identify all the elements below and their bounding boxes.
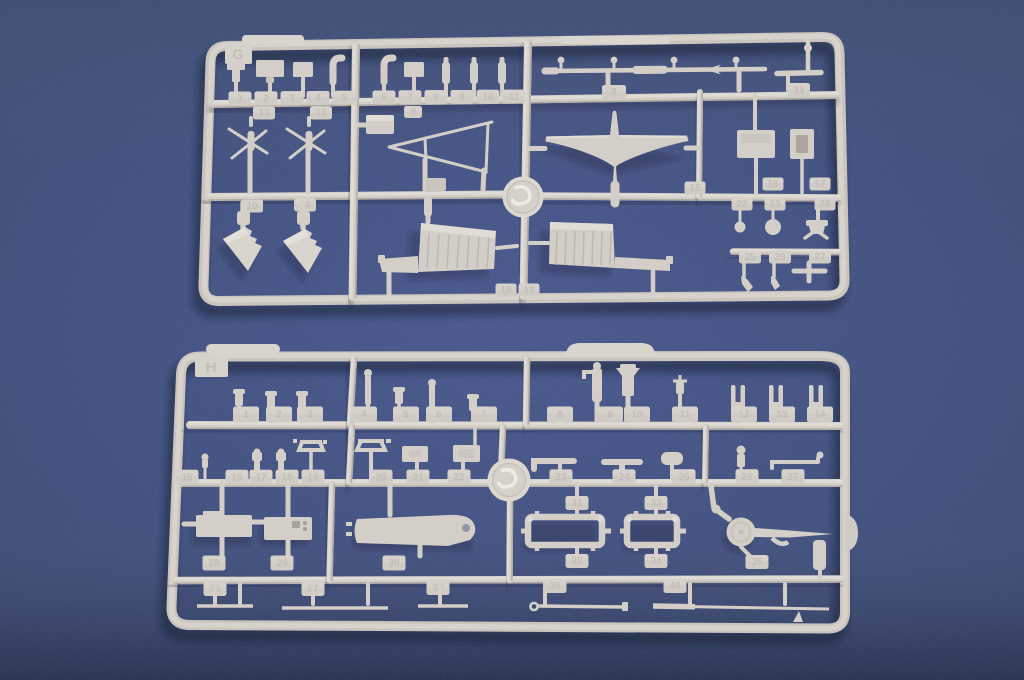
svg-text:32: 32 xyxy=(571,556,583,567)
svg-text:35: 35 xyxy=(751,557,763,568)
svg-text:15: 15 xyxy=(689,183,701,194)
svg-text:11: 11 xyxy=(680,410,691,421)
svg-text:10: 10 xyxy=(631,410,643,421)
svg-text:11: 11 xyxy=(794,85,805,96)
svg-text:4: 4 xyxy=(361,410,367,421)
svg-text:3: 3 xyxy=(307,410,313,421)
svg-text:26: 26 xyxy=(774,252,786,263)
svg-text:10: 10 xyxy=(482,92,494,103)
svg-text:17: 17 xyxy=(814,179,826,190)
svg-text:H: H xyxy=(206,359,217,376)
svg-text:34: 34 xyxy=(650,556,662,567)
svg-text:28: 28 xyxy=(208,558,220,569)
svg-text:40: 40 xyxy=(669,581,681,592)
svg-text:27: 27 xyxy=(787,472,799,483)
svg-text:26: 26 xyxy=(741,472,753,483)
svg-text:25: 25 xyxy=(678,472,690,483)
svg-text:7: 7 xyxy=(481,410,487,421)
svg-text:6: 6 xyxy=(436,410,442,421)
svg-text:16: 16 xyxy=(231,472,243,483)
svg-text:24: 24 xyxy=(618,472,630,483)
svg-text:8: 8 xyxy=(611,87,617,98)
svg-text:8: 8 xyxy=(433,92,439,103)
svg-text:16: 16 xyxy=(767,179,779,190)
svg-text:1: 1 xyxy=(243,410,249,421)
svg-text:11: 11 xyxy=(509,92,520,103)
svg-text:30: 30 xyxy=(388,558,400,569)
svg-text:2: 2 xyxy=(276,410,282,421)
svg-text:6: 6 xyxy=(381,93,387,104)
svg-text:G: G xyxy=(233,46,244,62)
svg-text:18: 18 xyxy=(500,285,512,296)
svg-text:25: 25 xyxy=(744,252,756,263)
svg-text:20: 20 xyxy=(375,472,387,483)
svg-text:28: 28 xyxy=(819,199,831,210)
svg-text:2: 2 xyxy=(263,94,269,105)
svg-text:9: 9 xyxy=(607,410,613,421)
svg-text:14: 14 xyxy=(814,410,826,421)
svg-text:8: 8 xyxy=(557,410,563,421)
svg-text:17: 17 xyxy=(255,472,267,483)
svg-text:22: 22 xyxy=(453,472,465,483)
svg-text:23: 23 xyxy=(555,472,567,483)
svg-text:15: 15 xyxy=(181,473,193,484)
svg-text:13: 13 xyxy=(258,108,270,119)
svg-text:3: 3 xyxy=(289,93,295,104)
svg-text:31: 31 xyxy=(571,498,583,509)
svg-text:4: 4 xyxy=(315,93,321,104)
svg-text:10: 10 xyxy=(246,201,258,212)
svg-text:12: 12 xyxy=(738,410,750,421)
svg-text:9: 9 xyxy=(410,107,416,118)
svg-text:22: 22 xyxy=(736,199,748,210)
svg-text:33: 33 xyxy=(650,498,662,509)
svg-text:7: 7 xyxy=(407,93,413,104)
svg-text:5: 5 xyxy=(341,93,347,104)
svg-text:21: 21 xyxy=(412,472,424,483)
svg-text:19: 19 xyxy=(523,285,535,296)
svg-text:19: 19 xyxy=(307,472,319,483)
svg-text:13: 13 xyxy=(776,410,788,421)
svg-text:29: 29 xyxy=(276,558,288,569)
svg-text:27: 27 xyxy=(814,252,826,263)
svg-text:5: 5 xyxy=(403,410,409,421)
svg-text:23: 23 xyxy=(769,199,781,210)
svg-text:1: 1 xyxy=(237,94,243,105)
svg-text:9: 9 xyxy=(459,92,465,103)
svg-text:39: 39 xyxy=(549,581,561,592)
svg-text:13: 13 xyxy=(315,108,327,119)
